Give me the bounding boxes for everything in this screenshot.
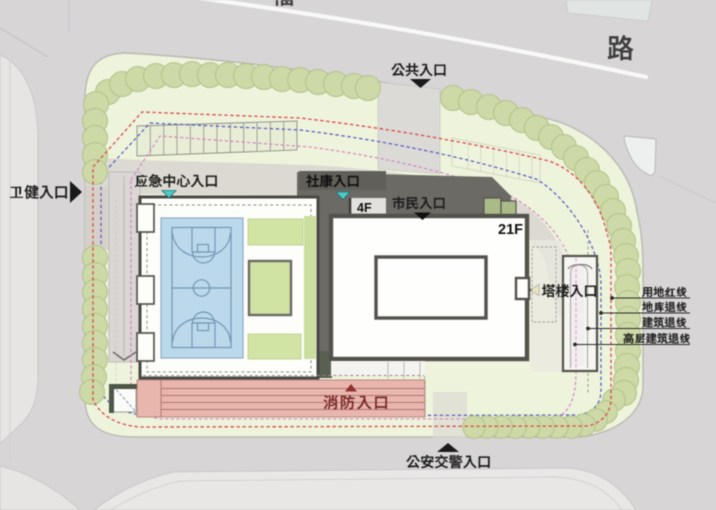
svg-text:21F: 21F [498, 222, 523, 238]
svg-text:4F: 4F [357, 201, 372, 215]
